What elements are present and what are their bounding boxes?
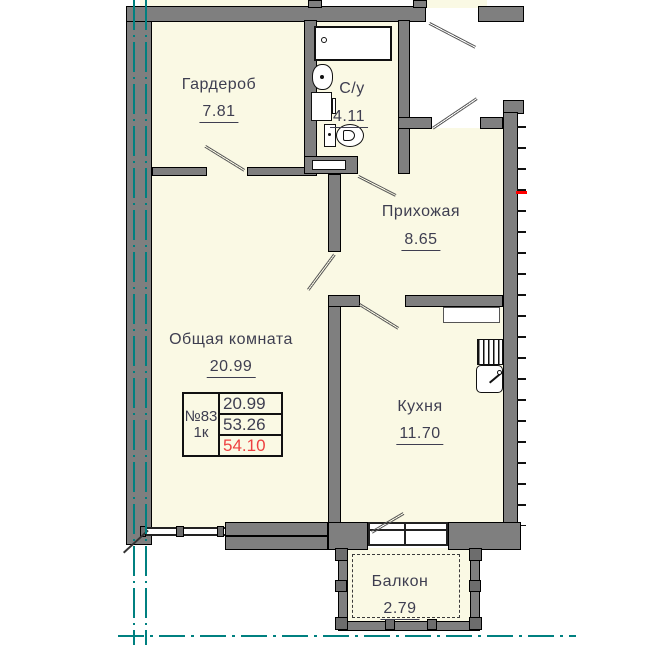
bathroom-sink: [312, 64, 333, 90]
balcony-post: [469, 548, 482, 561]
wall-stub-top-b: [413, 0, 427, 8]
balcony-post: [385, 619, 395, 630]
balcony-post: [427, 619, 437, 630]
balcony-post: [335, 548, 348, 561]
balcony-window-mullion: [405, 523, 407, 545]
living-room-area: 20.99: [207, 358, 256, 378]
wall-corridor-left: [398, 20, 410, 174]
hallway-kitchen-floor: [332, 128, 503, 530]
wall-hall-kitchen-divider-left: [328, 295, 360, 307]
corridor-door-swing: [429, 22, 477, 49]
wardrobe-area: 7.81: [199, 103, 238, 123]
wall-right-exterior: [503, 112, 518, 535]
balcony-post: [469, 617, 482, 630]
balcony-wall-bottom: [338, 621, 480, 631]
vent-shaft: [312, 160, 346, 170]
kitchen-faucet-head: [497, 370, 502, 375]
washing-machine: [311, 92, 332, 121]
wall-living-bottom-a: [225, 522, 328, 536]
hallway-label: Прихожая: [382, 203, 460, 221]
kitchen-duct-box: [443, 307, 500, 323]
kitchen-label: Кухня: [397, 398, 442, 416]
bathroom-label: С/у: [339, 80, 365, 98]
bathtub: [314, 26, 392, 61]
wall-left-exterior: [126, 6, 152, 545]
wardrobe-label: Гардероб: [182, 76, 256, 94]
wall-living-kitchen: [328, 295, 341, 530]
wall-corridor-bottom-left: [398, 117, 432, 129]
wall-hall-kitchen-divider-right: [405, 295, 503, 307]
wall-kitchen-bottom-right: [448, 522, 521, 550]
wall-corridor-bottom-right: [480, 117, 503, 129]
apartment-type: 1к: [194, 425, 209, 441]
living-room-label: Общая комната: [169, 331, 293, 349]
floor-plan: Гардероб 7.81 С/у 4.11 Прихожая 8.65 Общ…: [0, 0, 645, 645]
balcony-area: 2.79: [380, 600, 419, 620]
wall-top-right-block: [478, 6, 524, 22]
wardrobe-floor: [152, 20, 312, 177]
apartment-areas-cell: 20.99 53.26 54.10: [220, 394, 281, 455]
section-mark-red: [516, 191, 527, 194]
total-area-value: 54.10: [220, 436, 281, 455]
axis-line-horizontal: [118, 635, 576, 637]
wall-wardrobe-bottom-left: [152, 167, 207, 176]
wall-living-bottom-b: [225, 536, 328, 550]
toilet-bowl-inner: [343, 130, 355, 141]
balcony-post: [335, 580, 347, 592]
axis-line-vertical-1: [133, 0, 135, 645]
balcony-post: [335, 617, 348, 630]
apartment-number-cell: №83 1к: [184, 394, 220, 455]
balcony-label: Балкон: [372, 573, 429, 591]
bathroom-area: 4.11: [330, 108, 368, 128]
sink-drain: [320, 75, 324, 79]
wall-stub-top-a: [308, 0, 322, 8]
area-without-balcony-value: 53.26: [220, 415, 281, 436]
apartment-number: №83: [185, 409, 218, 425]
wall-living-hall-upper: [328, 174, 341, 252]
balcony-post: [469, 580, 481, 592]
bathtub-drain: [321, 37, 327, 43]
window-post: [217, 526, 224, 537]
wall-right-tick-marks: [517, 126, 526, 526]
stove: [477, 339, 503, 365]
kitchen-area: 11.70: [396, 425, 443, 445]
hallway-area: 8.65: [401, 231, 440, 251]
wall-kitchen-bottom-left: [328, 522, 368, 550]
window-post: [176, 526, 184, 537]
toilet-button: [328, 133, 331, 136]
living-room-floor: [152, 172, 342, 530]
entry-door-swing: [432, 97, 478, 129]
apartment-info-table: №83 1к 20.99 53.26 54.10: [182, 392, 283, 457]
wall-top: [126, 6, 426, 22]
axis-line-vertical-2: [145, 0, 147, 645]
living-area-value: 20.99: [220, 394, 281, 415]
balcony-window-frame-line: [369, 529, 447, 531]
